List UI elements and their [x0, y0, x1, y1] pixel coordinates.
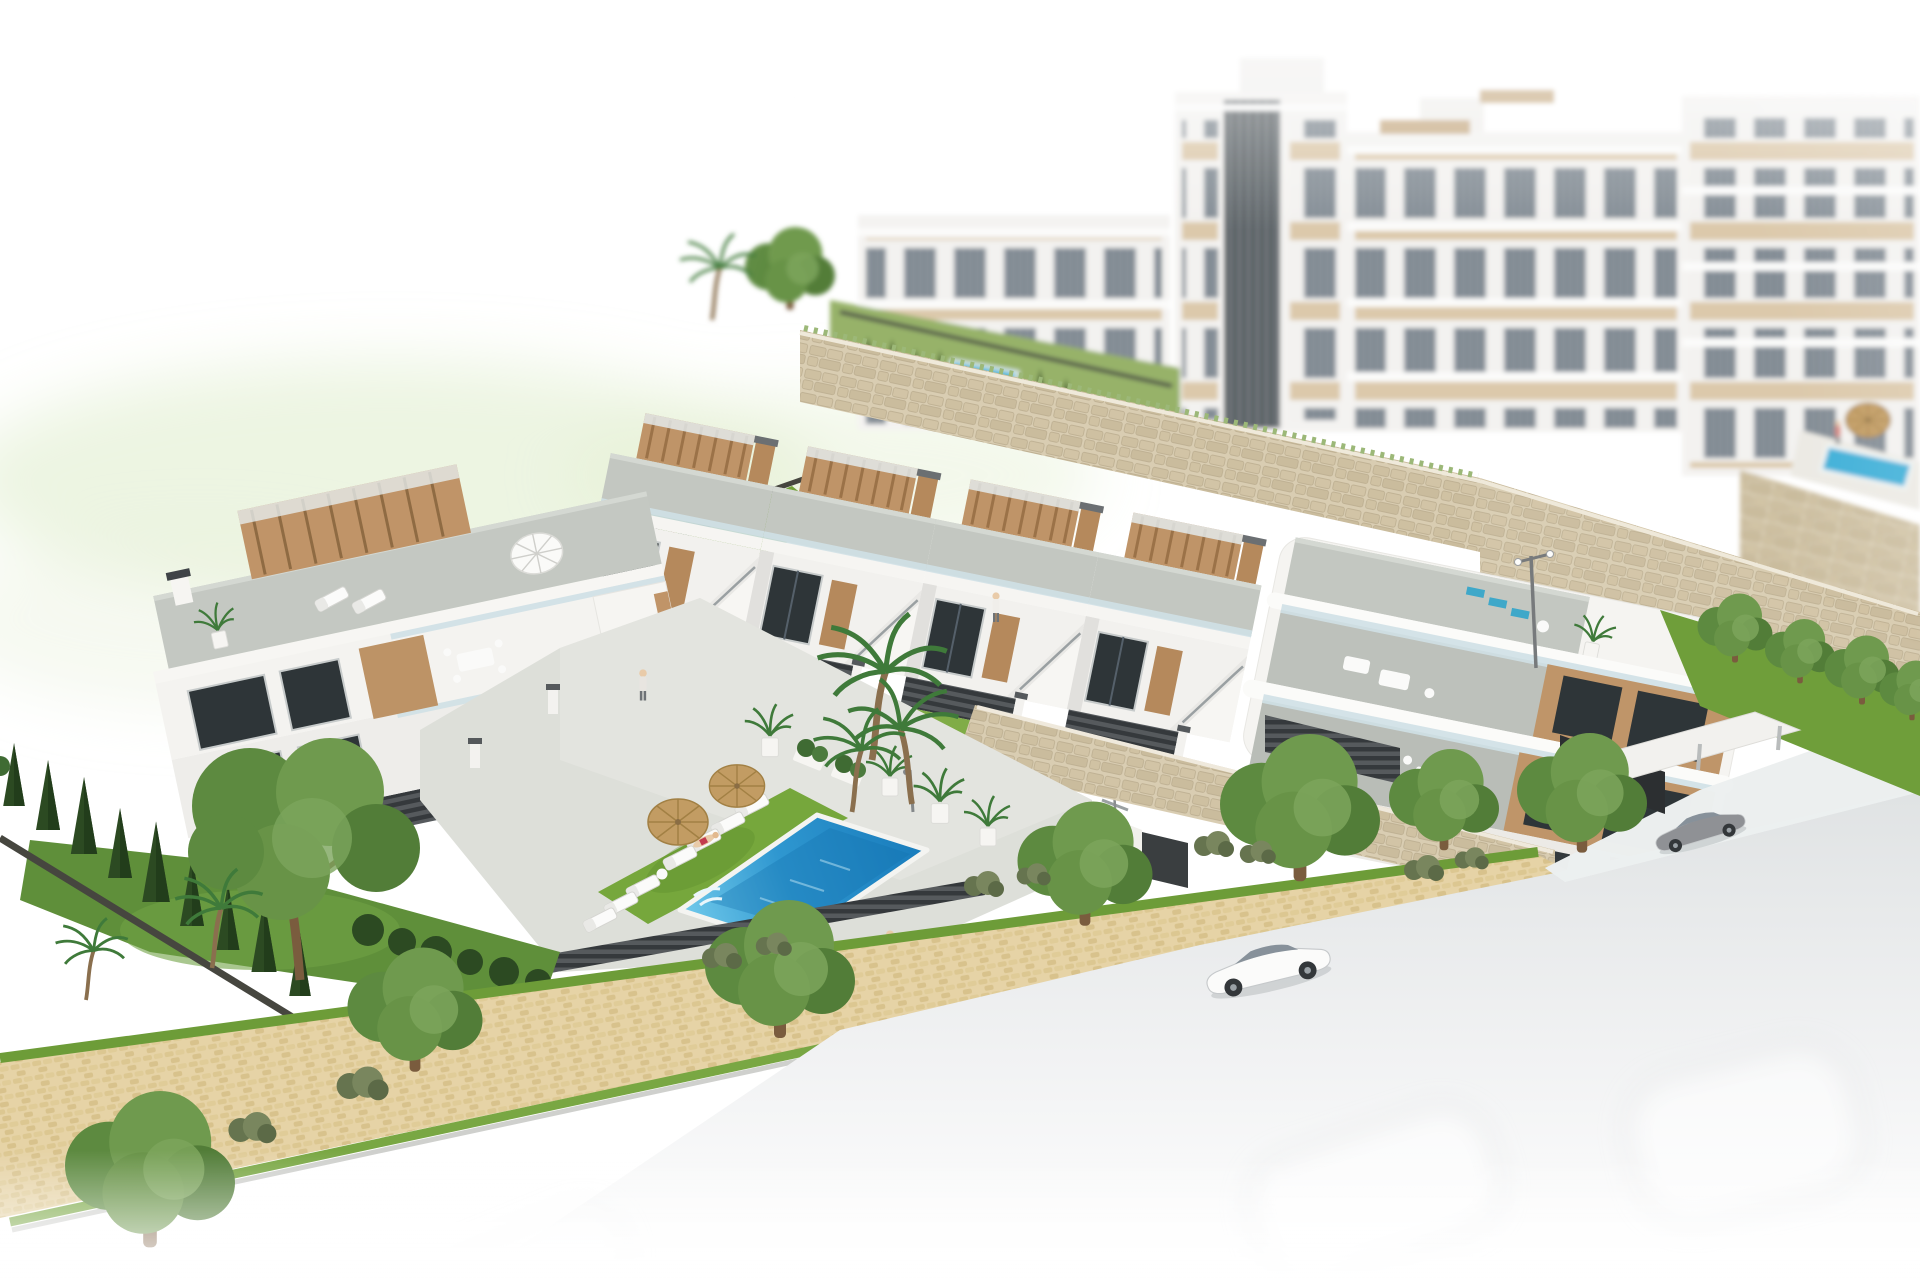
architectural-render: [0, 0, 1920, 1280]
thatch-umbrella: [709, 765, 764, 807]
bottom-fade: [0, 1150, 1920, 1280]
render-stage: [0, 0, 1920, 1280]
thatch-umbrella: [648, 799, 708, 845]
